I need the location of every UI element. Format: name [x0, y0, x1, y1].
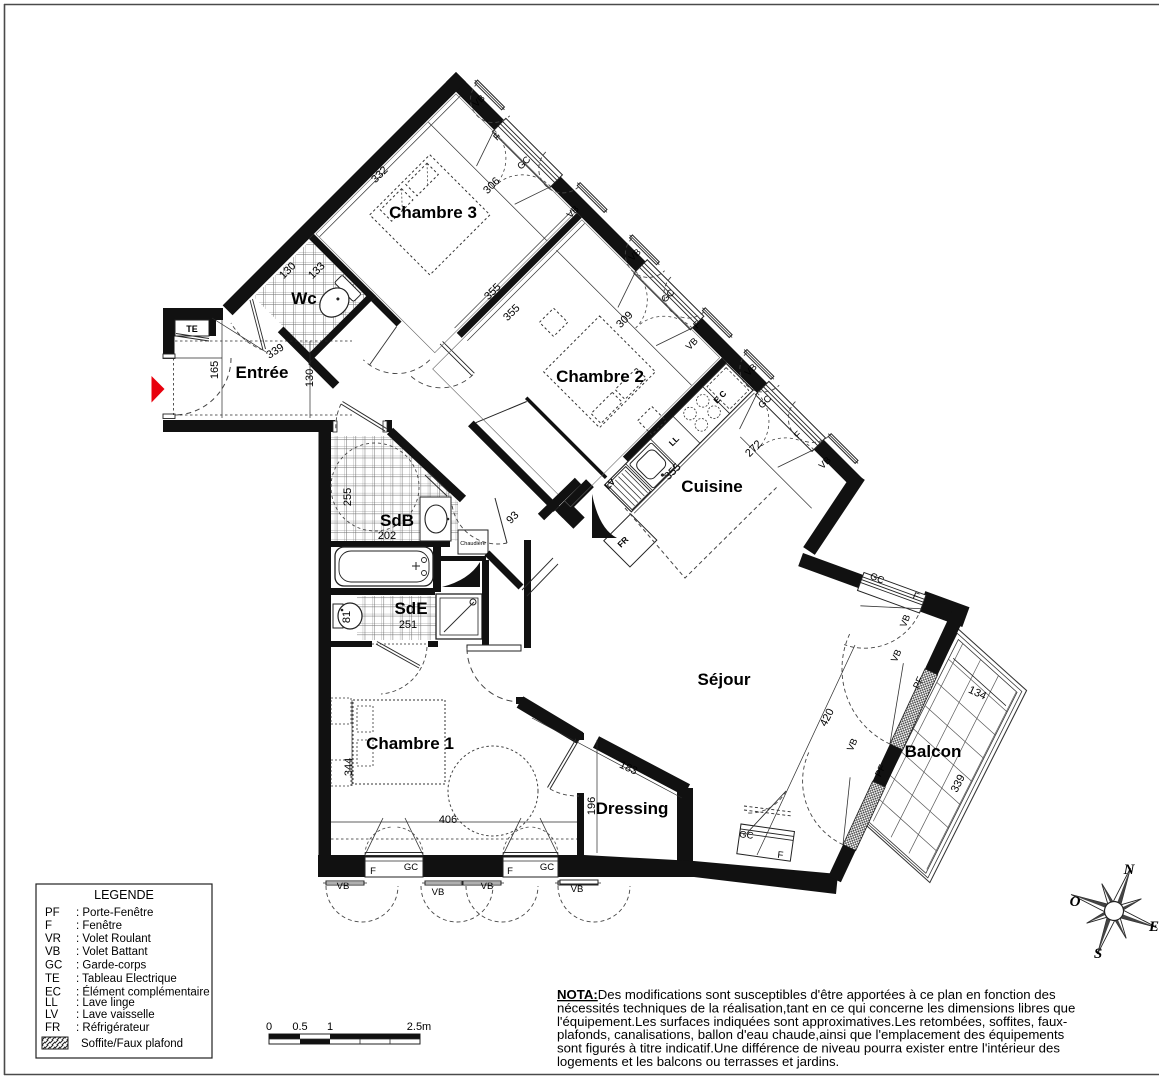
- svg-text:339: 339: [264, 341, 286, 361]
- svg-text:GC: GC: [739, 829, 755, 842]
- svg-text:GC: GC: [540, 862, 554, 873]
- svg-text:Soffite/Faux plafond: Soffite/Faux plafond: [81, 1038, 183, 1050]
- svg-text:F: F: [45, 920, 52, 932]
- svg-text:: Fenêtre: : Fenêtre: [76, 920, 122, 932]
- svg-text:Chambre 1: Chambre 1: [366, 734, 454, 753]
- svg-text:GC: GC: [45, 960, 62, 972]
- svg-text:LEGENDE: LEGENDE: [94, 888, 154, 902]
- svg-text:202: 202: [378, 530, 396, 542]
- svg-text:: Garde-corps: : Garde-corps: [76, 960, 147, 972]
- svg-text:: Tableau Electrique: : Tableau Electrique: [76, 973, 177, 985]
- svg-text:272: 272: [743, 438, 764, 459]
- svg-text:196: 196: [586, 797, 598, 815]
- svg-text:F: F: [507, 866, 513, 877]
- svg-text:VB: VB: [481, 881, 494, 892]
- svg-text:: Lave vaisselle: : Lave vaisselle: [76, 1009, 155, 1021]
- svg-text:E: E: [1148, 919, 1159, 935]
- svg-text:VB: VB: [898, 613, 913, 629]
- svg-text:PF: PF: [45, 907, 60, 919]
- svg-text:LL: LL: [45, 997, 58, 1009]
- svg-text:Séjour: Séjour: [698, 670, 751, 689]
- svg-text:VB: VB: [684, 336, 701, 353]
- svg-text:: Réfrigérateur: : Réfrigérateur: [76, 1022, 150, 1034]
- svg-text:: Volet Roulant: : Volet Roulant: [76, 933, 152, 945]
- svg-text:VB: VB: [45, 946, 61, 958]
- svg-text:Dressing: Dressing: [596, 799, 669, 818]
- svg-text:S: S: [1094, 946, 1102, 962]
- svg-text:Wc: Wc: [291, 289, 317, 308]
- svg-text:SdB: SdB: [380, 511, 414, 530]
- svg-text:N: N: [1123, 862, 1136, 878]
- svg-text:0: 0: [266, 1021, 272, 1033]
- svg-text:344: 344: [343, 758, 355, 776]
- svg-text:406: 406: [439, 814, 457, 826]
- svg-text:FR: FR: [615, 534, 630, 549]
- svg-text:VB: VB: [337, 881, 350, 892]
- svg-text:TE: TE: [45, 973, 60, 985]
- svg-text:O: O: [1070, 894, 1081, 910]
- svg-text:251: 251: [399, 619, 417, 631]
- svg-text:255: 255: [342, 488, 354, 506]
- svg-text:GC: GC: [404, 862, 418, 873]
- svg-text:FR: FR: [45, 1022, 60, 1034]
- svg-text:LV: LV: [45, 1009, 59, 1021]
- svg-text:Entrée: Entrée: [236, 363, 289, 382]
- svg-text:LL: LL: [667, 434, 681, 448]
- svg-text:Cuisine: Cuisine: [681, 477, 742, 496]
- svg-text:VB: VB: [845, 737, 860, 753]
- svg-text:Chambre 3: Chambre 3: [389, 203, 477, 222]
- svg-text:339: 339: [949, 773, 968, 795]
- svg-text:: Volet Battant: : Volet Battant: [76, 946, 148, 958]
- svg-text:: Porte-Fenêtre: : Porte-Fenêtre: [76, 907, 153, 919]
- svg-text:355: 355: [501, 302, 522, 323]
- svg-text:Balcon: Balcon: [905, 742, 962, 761]
- svg-text:Chaudière: Chaudière: [460, 541, 485, 547]
- svg-text:0.5: 0.5: [292, 1021, 307, 1033]
- svg-text:F: F: [370, 866, 376, 877]
- svg-text:VR: VR: [45, 933, 61, 945]
- svg-text:93: 93: [504, 509, 521, 526]
- svg-text:130: 130: [304, 369, 316, 387]
- svg-text:420: 420: [818, 707, 837, 729]
- svg-text:: Lave linge: : Lave linge: [76, 997, 135, 1009]
- svg-text:2.5m: 2.5m: [407, 1021, 431, 1033]
- svg-text:165: 165: [209, 361, 221, 379]
- svg-text:SdE: SdE: [394, 599, 427, 618]
- svg-text:VB: VB: [889, 648, 904, 664]
- svg-text:355: 355: [482, 281, 503, 302]
- svg-text:309: 309: [614, 309, 635, 330]
- svg-text:TE: TE: [186, 324, 198, 334]
- svg-text:logements et les balcons ou te: logements et les balcons ou terrasses et…: [557, 1054, 839, 1069]
- svg-text:Chambre 2: Chambre 2: [556, 367, 644, 386]
- svg-text:VB: VB: [432, 887, 445, 898]
- svg-text:81: 81: [341, 611, 353, 623]
- svg-text:VB: VB: [571, 884, 584, 895]
- svg-text:E C: E C: [711, 388, 728, 405]
- svg-text:1: 1: [327, 1021, 333, 1033]
